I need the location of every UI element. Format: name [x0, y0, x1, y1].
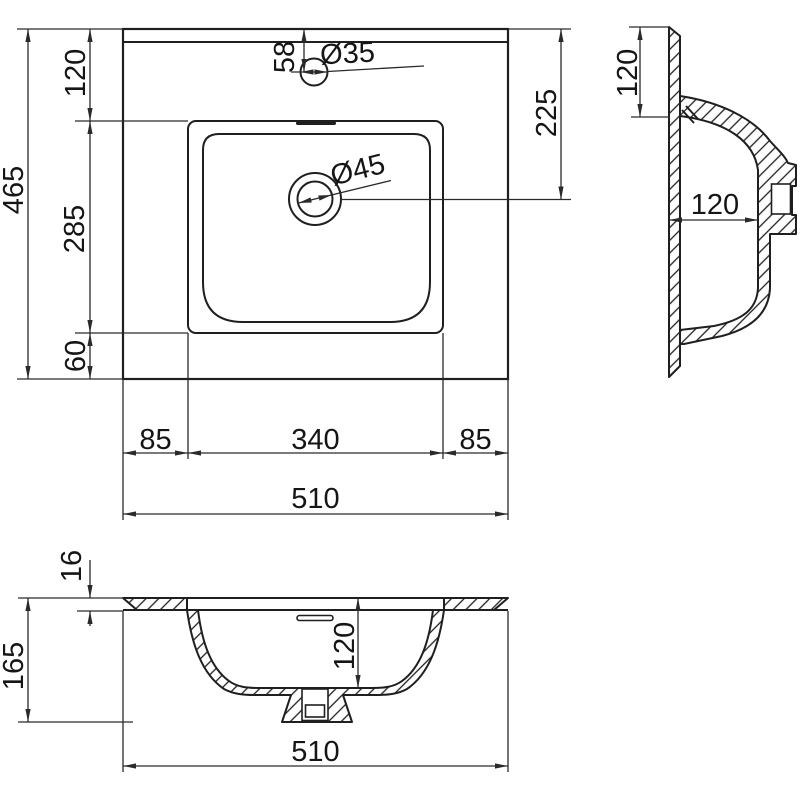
overflow-slot-front — [297, 616, 333, 621]
plan-outer-rect — [123, 29, 508, 379]
dim-overall-height: 165 — [0, 642, 30, 690]
plan-bowl-inner-edge — [203, 134, 430, 322]
label-drain-dia: Ø45 — [327, 148, 388, 192]
plan-view — [123, 29, 508, 379]
dim-bowl-length: 285 — [59, 205, 91, 253]
plan-deck-recess — [188, 121, 443, 333]
dim-faucet-offset: 58 — [269, 41, 301, 73]
front-dimensions: 16 165 120 510 — [0, 550, 508, 772]
dim-bowl-inner-depth: 120 — [329, 622, 361, 670]
washbasin-technical-drawing: 465 120 285 60 58 Ø35 Ø45 225 85 340 85 … — [0, 0, 800, 800]
dim-side-bowl-depth: 120 — [691, 189, 739, 221]
dim-drain-from-back: 225 — [531, 89, 563, 137]
overflow-channel-side — [772, 184, 791, 214]
front-section-view — [123, 598, 508, 722]
dim-overall-width-front: 510 — [291, 736, 339, 768]
dim-overall-depth: 465 — [0, 166, 30, 214]
dim-right-margin: 85 — [459, 424, 491, 456]
dim-back-margin: 120 — [60, 49, 92, 97]
front-right-rim — [444, 598, 508, 610]
dim-left-margin: 85 — [139, 424, 171, 456]
side-deck-wall — [669, 27, 680, 377]
drain-outlet-front — [306, 705, 325, 717]
dim-front-margin: 60 — [60, 340, 92, 372]
plan-dimensions: 465 120 285 60 58 Ø35 Ø45 225 85 340 85 … — [0, 29, 571, 520]
dim-side-deck-width: 120 — [612, 49, 644, 97]
dim-bowl-width: 340 — [291, 424, 339, 456]
overflow-slot-plan — [296, 122, 336, 126]
label-faucet-hole-dia: Ø35 — [319, 37, 375, 72]
dim-overall-width-plan: 510 — [291, 483, 339, 515]
dim-rim-thickness: 16 — [56, 550, 88, 582]
front-left-rim — [123, 598, 187, 610]
